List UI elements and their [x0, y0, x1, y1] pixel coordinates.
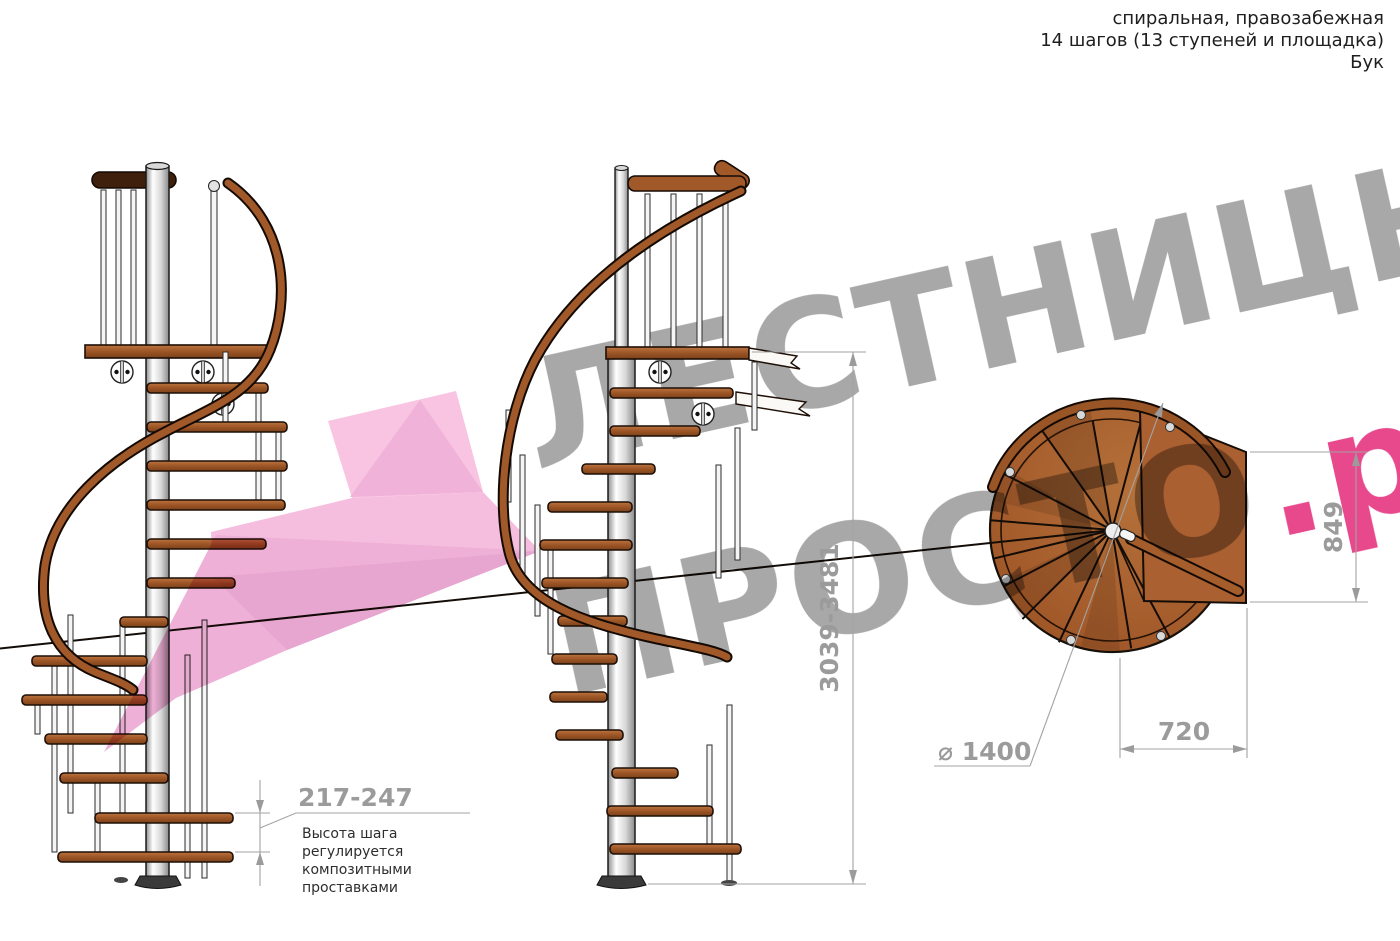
baluster-rod [520, 455, 525, 578]
baluster-rod [52, 658, 57, 852]
baluster-rod [723, 194, 728, 350]
baluster-rod [116, 190, 121, 348]
pole-base-flange [597, 876, 646, 889]
connector-plate [192, 361, 214, 383]
baluster-rod [671, 194, 676, 350]
note-line-3: композитными [302, 862, 412, 878]
baluster-rod [727, 705, 732, 882]
balcony-handrail [628, 176, 746, 191]
note-line-4: проставками [302, 880, 398, 896]
dimension-total-height: 3039-3481 [815, 543, 844, 693]
rod-foot [721, 880, 737, 886]
central-pole [146, 166, 169, 878]
connector-plate [692, 403, 714, 425]
dimension-step-height: 217-247 [298, 783, 413, 812]
watermark: ЛЕСТНИЦЫ ПРОСТО.ру [104, 115, 1400, 752]
baluster-rod [101, 190, 106, 348]
pole-base-flange [135, 876, 181, 889]
baluster-rod [752, 362, 757, 430]
connector-plate [649, 361, 671, 383]
baluster-rod [131, 190, 136, 348]
baluster-rod [707, 745, 712, 844]
dimension-landing-depth: 849 [1319, 501, 1348, 553]
dimension-landing-width: 720 [1158, 717, 1210, 746]
baluster-rod [211, 188, 217, 348]
note-line-2: регулируется [302, 844, 403, 860]
connector-plate [111, 361, 133, 383]
baluster-rod [716, 465, 721, 578]
baluster-rod [256, 392, 261, 500]
handrail-joint-ball [209, 181, 220, 192]
newel-top-cap [615, 166, 628, 171]
drawing-canvas: спиральная, правозабежная 14 шагов (13 с… [0, 0, 1400, 941]
staircase-drawing: ЛЕСТНИЦЫ ПРОСТО.ру [0, 0, 1400, 941]
landing-platform-board [606, 347, 749, 359]
dimension-diameter: ⌀ 1400 [938, 737, 1031, 766]
baluster-rod [645, 194, 650, 350]
note-line-1: Высота шага [302, 826, 397, 842]
rod-foot [114, 877, 128, 883]
pole-top-cap [146, 163, 169, 170]
baluster-rod [735, 428, 740, 560]
landing-platform-board [85, 345, 268, 358]
